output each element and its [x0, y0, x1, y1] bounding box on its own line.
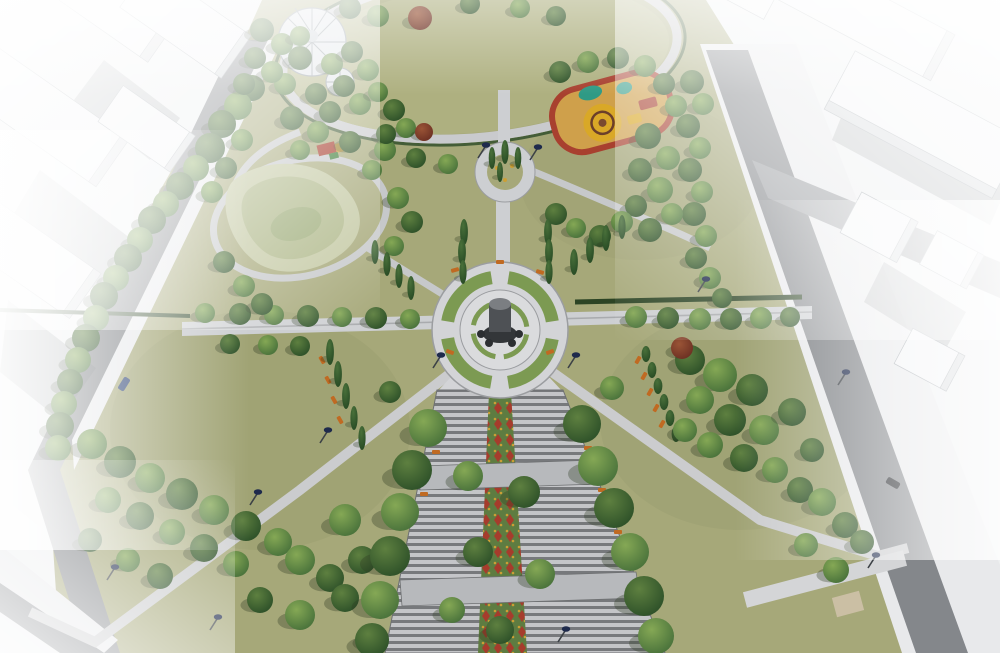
cypress-tree [459, 260, 466, 284]
bench [432, 450, 440, 454]
round-tree [406, 148, 426, 168]
round-tree [285, 600, 315, 630]
cypress-tree [395, 264, 402, 288]
round-tree [463, 537, 493, 567]
round-tree [594, 488, 634, 528]
round-tree [624, 576, 664, 616]
bench [614, 530, 622, 534]
cypress-tree [545, 260, 552, 284]
lamp-head [254, 489, 262, 495]
lamp-head [534, 144, 542, 150]
shrub-cone [648, 362, 657, 378]
cypress-tree [334, 361, 342, 387]
round-tree [578, 446, 618, 486]
shrub-cone [654, 378, 663, 394]
round-tree [370, 536, 410, 576]
round-tree [823, 557, 849, 583]
bench [420, 492, 428, 496]
red-leaf-tree [671, 337, 693, 359]
round-tree [438, 154, 458, 174]
round-tree [400, 309, 420, 329]
cypress-tree [497, 162, 503, 182]
cypress-tree [515, 147, 522, 169]
lamp-head [482, 142, 490, 148]
scene-svg [0, 0, 1000, 653]
cypress-tree [489, 147, 496, 169]
bench [496, 260, 504, 264]
red-leaf-tree [415, 123, 433, 141]
round-tree [673, 418, 697, 442]
round-tree [290, 336, 310, 356]
round-tree [638, 618, 674, 653]
round-tree [387, 187, 409, 209]
round-tree [258, 335, 278, 355]
round-tree [525, 559, 555, 589]
shrub-cone [642, 346, 651, 362]
round-tree [247, 587, 273, 613]
cypress-tree [342, 383, 350, 409]
round-tree [383, 99, 405, 121]
shrub-cone [660, 394, 669, 410]
round-tree [566, 218, 586, 238]
round-tree [329, 504, 361, 536]
lamp-head [324, 427, 332, 433]
cypress-tree [350, 406, 357, 430]
round-tree [611, 533, 649, 571]
cypress-tree [358, 426, 365, 450]
cypress-tree [383, 252, 390, 276]
round-tree [600, 376, 624, 400]
round-tree [409, 409, 447, 447]
round-tree [563, 405, 601, 443]
round-tree [285, 545, 315, 575]
round-tree [686, 386, 714, 414]
round-tree [379, 381, 401, 403]
round-tree [392, 450, 432, 490]
round-tree [401, 211, 423, 233]
round-tree [508, 476, 540, 508]
round-tree [486, 616, 514, 644]
cypress-tree [570, 249, 578, 275]
cypress-tree [407, 276, 414, 300]
round-tree [361, 581, 399, 619]
cypress-tree [586, 237, 594, 263]
shrub-cone [666, 410, 675, 426]
cypress-tree [501, 140, 508, 164]
lamp-head [562, 626, 570, 632]
cypress-tree [602, 225, 610, 251]
north-axis-upper [498, 90, 510, 146]
round-tree [697, 432, 723, 458]
lamp-head [572, 352, 580, 358]
round-tree [453, 461, 483, 491]
park-render-canvas [0, 0, 1000, 653]
lamp-head [437, 352, 445, 358]
round-tree [439, 597, 465, 623]
round-tree [381, 493, 419, 531]
cypress-tree [326, 339, 334, 365]
round-tree [703, 358, 737, 392]
